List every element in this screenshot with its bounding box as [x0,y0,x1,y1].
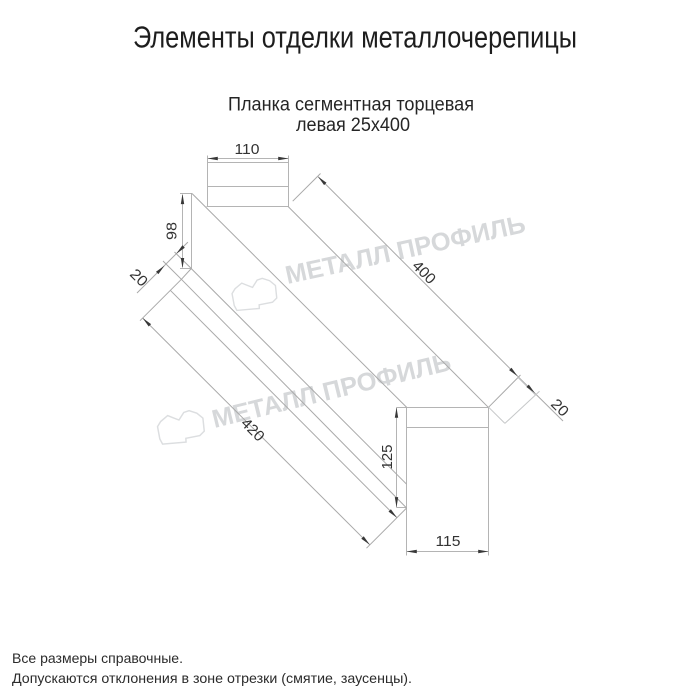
svg-text:20: 20 [126,266,151,291]
svg-text:20: 20 [547,396,572,421]
svg-text:Планка сегментная торцевая: Планка сегментная торцевая [228,95,474,116]
svg-text:левая 25х400: левая 25х400 [296,115,410,136]
svg-text:125: 125 [379,445,396,470]
svg-text:Элементы отделки металлочерепи: Элементы отделки металлочерепицы [133,20,577,55]
svg-text:98: 98 [163,222,180,240]
svg-text:115: 115 [436,533,461,550]
svg-text:110: 110 [235,141,260,158]
svg-text:МЕТАЛЛ ПРОФИЛЬ: МЕТАЛЛ ПРОФИЛЬ [283,210,528,290]
svg-text:Все размеры справочные.: Все размеры справочные. [12,651,183,666]
svg-text:Допускаются отклонения в зоне: Допускаются отклонения в зоне отрезки (с… [12,671,412,686]
